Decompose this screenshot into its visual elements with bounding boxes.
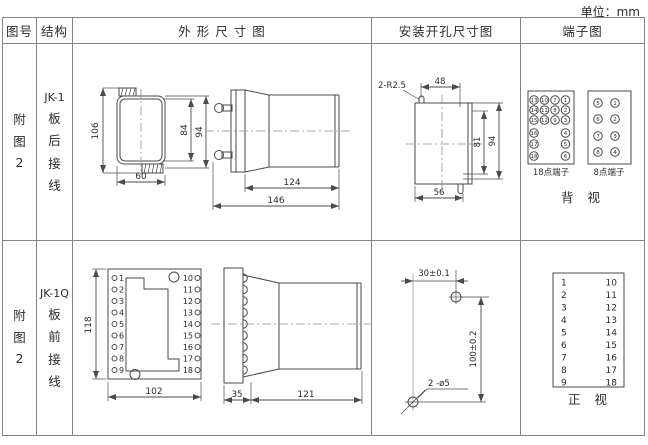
dim-81: 81 [463,111,488,174]
svg-text:2-R2.5: 2-R2.5 [378,81,406,91]
dimension-table: 图号 结构 外 形 尺 寸 图 安装开孔尺寸图 端子图 附 图 2 JK-1 板… [2,17,645,436]
structure-char: 线 [48,376,61,389]
svg-text:94: 94 [195,126,205,138]
header-terminal: 端子图 [521,18,644,44]
svg-text:9: 9 [553,118,557,124]
holes-callout: 2 -ø5 [418,379,468,398]
svg-text:2: 2 [119,285,124,294]
svg-text:1: 1 [119,274,124,283]
dim-121: 121 [251,371,362,404]
svg-text:6: 6 [561,341,567,351]
svg-text:10: 10 [541,98,548,104]
svg-text:4: 4 [561,316,567,326]
svg-text:7: 7 [119,343,124,352]
header-outline: 外 形 尺 寸 图 [73,18,372,44]
structure-char: 前 [48,331,61,344]
structure-char: 板 [48,113,61,126]
dim-146: 146 [213,162,339,210]
structure-char: 板 [48,309,61,322]
svg-text:14: 14 [531,108,538,114]
terminal-numbers-right: 10 11 12 13 14 15 16 17 18 [606,279,618,389]
jk1-front-view: 106 84 94 [91,88,209,186]
svg-text:18: 18 [606,379,618,389]
svg-text:106: 106 [91,122,101,139]
front-terminals-left: 1 2 3 4 5 6 7 8 9 [112,274,124,375]
svg-text:3: 3 [613,134,617,140]
row1-terminal-cell: 13 10 7 1 14 11 8 2 15 12 9 3 16 4 17 5 [521,44,644,241]
structure-char: 后 [48,135,61,148]
slot-callout: 2-R2.5 [378,81,420,100]
header-fig-no: 图号 [3,18,37,44]
svg-text:2: 2 [564,108,568,114]
svg-text:3: 3 [564,118,568,124]
svg-text:100±0.2: 100±0.2 [469,331,479,368]
svg-text:94: 94 [488,136,498,147]
svg-text:11: 11 [183,285,193,294]
svg-text:16: 16 [183,343,193,352]
mount-hole-top [169,272,179,282]
mount-slot-bottom [458,184,463,194]
svg-text:7: 7 [553,98,557,104]
terminal-block-hatch-top [119,88,136,96]
svg-text:30±0.1: 30±0.1 [418,269,449,279]
svg-text:14: 14 [183,320,193,329]
terminal-block-8 [588,91,631,164]
svg-text:146: 146 [267,196,284,206]
row2-structure-cell: JK-1Q 板 前 接 线 [37,241,73,435]
svg-text:3: 3 [561,304,567,314]
fig-char: 附 [13,310,26,323]
dim-84: 84 [163,99,194,161]
row2-terminal-cell: 1 2 3 4 5 6 7 8 9 10 11 12 13 14 15 [521,241,644,435]
svg-text:5: 5 [596,101,600,107]
svg-text:8: 8 [596,150,600,156]
svg-text:102: 102 [145,387,162,397]
terminal-stud [215,151,233,160]
svg-text:81: 81 [473,137,483,148]
svg-text:84: 84 [180,124,190,136]
inner-step-outline [126,278,179,371]
jk1-install-drawing: 2-R2.5 48 81 94 [372,44,521,241]
svg-text:6: 6 [564,154,568,160]
jk1q-outline-drawing: 1 2 3 4 5 6 7 8 9 10 11 12 13 [73,241,372,438]
svg-text:56: 56 [434,188,445,198]
svg-text:15: 15 [606,341,617,351]
svg-text:124: 124 [283,178,300,188]
svg-text:10: 10 [183,274,193,283]
svg-text:9: 9 [119,366,124,375]
svg-text:13: 13 [183,308,193,317]
relay-dimension-sheet: 单位：mm 图号 结构 外 形 尺 寸 图 安装开孔尺寸图 端子图 附 图 2 … [0,0,648,445]
svg-text:4: 4 [119,308,124,317]
mount-hole-top [449,290,489,304]
header-structure: 结构 [37,18,73,44]
row2-outline-cell: 1 2 3 4 5 6 7 8 9 10 11 12 13 [73,241,372,435]
row2-install-cell: 30±0.1 100±0.2 [372,241,521,435]
front-terminals-right: 10 11 12 13 14 15 16 17 18 [183,274,200,375]
svg-text:6: 6 [596,117,600,123]
row1-outline-cell: 106 84 94 [73,44,372,241]
fig-char: 2 [16,157,24,170]
header-install: 安装开孔尺寸图 [372,18,521,44]
svg-text:13: 13 [606,316,617,326]
fig-char: 图 [13,136,26,149]
jk1q-front-view: 1 2 3 4 5 6 7 8 9 10 11 12 13 [84,269,201,401]
jk1-outline-drawing: 106 84 94 [73,44,372,241]
dim-94: 94 [463,103,503,179]
svg-text:2 -ø5: 2 -ø5 [428,379,450,389]
svg-text:5: 5 [119,320,124,329]
svg-text:1: 1 [561,279,567,289]
dim-56: 56 [415,186,463,202]
terminal-numbers-left: 1 2 3 4 5 6 7 8 9 [561,279,567,389]
svg-text:1: 1 [613,101,617,107]
svg-text:11: 11 [541,108,548,114]
jk1-terminal-diagram: 13 10 7 1 14 11 8 2 15 12 9 3 16 4 17 5 [521,44,644,241]
svg-text:3: 3 [119,297,124,306]
svg-text:16: 16 [531,131,538,137]
structure-char: 线 [48,180,61,193]
row1-install-cell: 2-R2.5 48 81 94 [372,44,521,241]
svg-text:11: 11 [606,291,617,301]
terminal-pins-8: 5 1 6 2 7 3 8 4 [594,99,620,157]
svg-text:16: 16 [606,354,618,364]
fig-char: 附 [13,114,26,127]
svg-text:7: 7 [561,354,567,364]
svg-text:12: 12 [183,297,193,306]
terminal-pins-18: 13 10 7 1 14 11 8 2 15 12 9 3 16 4 17 5 [530,96,570,161]
svg-text:4: 4 [564,131,568,137]
dim-100: 100±0.2 [469,297,481,402]
row1-fig-no-cell: 附 图 2 [3,44,37,241]
dim-102: 102 [108,382,201,401]
svg-text:14: 14 [606,329,618,339]
svg-text:9: 9 [561,379,567,389]
view-label-rear: 背 视 [561,190,605,205]
svg-text:15: 15 [183,331,193,340]
dim-30: 30±0.1 [401,269,468,291]
jk1q-install-drawing: 30±0.1 100±0.2 [372,241,521,438]
svg-text:12: 12 [606,304,617,314]
svg-text:2: 2 [613,117,617,123]
view-label-front: 正 视 [568,392,612,407]
label-18-point: 18点端子 [533,167,570,178]
svg-text:5: 5 [561,329,567,339]
row2-fig-no-cell: 附 图 2 [3,241,37,435]
svg-text:60: 60 [135,172,147,182]
row1-structure-cell: JK-1 板 后 接 线 [37,44,73,241]
svg-text:8: 8 [561,366,567,376]
dim-35: 35 [224,382,251,404]
svg-text:10: 10 [606,279,618,289]
fig-char: 图 [13,332,26,345]
svg-text:18: 18 [531,154,538,160]
svg-text:5: 5 [564,142,568,148]
jk1q-side-view: 35 121 [211,268,371,404]
svg-text:15: 15 [531,118,538,124]
structure-model: JK-1 [44,92,64,103]
jk1q-terminal-diagram: 1 2 3 4 5 6 7 8 9 10 11 12 13 14 15 [521,241,644,438]
svg-text:12: 12 [541,118,548,124]
svg-text:6: 6 [119,331,124,340]
terminal-stud [215,104,233,113]
structure-char: 接 [48,158,61,171]
svg-text:18: 18 [183,366,193,375]
dim-118: 118 [84,269,106,379]
svg-text:8: 8 [119,354,124,363]
svg-text:13: 13 [531,98,538,104]
svg-text:35: 35 [232,390,243,400]
svg-text:17: 17 [531,142,538,148]
structure-char: 接 [48,354,61,367]
svg-text:48: 48 [435,77,446,87]
svg-text:4: 4 [613,150,617,156]
fig-char: 2 [16,353,24,366]
svg-text:7: 7 [596,134,600,140]
jk1-side-view: 124 146 [205,90,353,210]
mount-hole-bottom [401,390,486,414]
svg-text:121: 121 [297,390,314,400]
svg-text:17: 17 [183,354,193,363]
svg-text:8: 8 [553,108,557,114]
svg-text:118: 118 [84,316,94,333]
svg-text:17: 17 [606,366,617,376]
svg-text:1: 1 [564,98,568,104]
label-8-point: 8点端子 [594,167,625,178]
dim-124: 124 [245,169,339,210]
svg-text:2: 2 [561,291,567,301]
structure-model: JK-1Q [40,288,69,299]
